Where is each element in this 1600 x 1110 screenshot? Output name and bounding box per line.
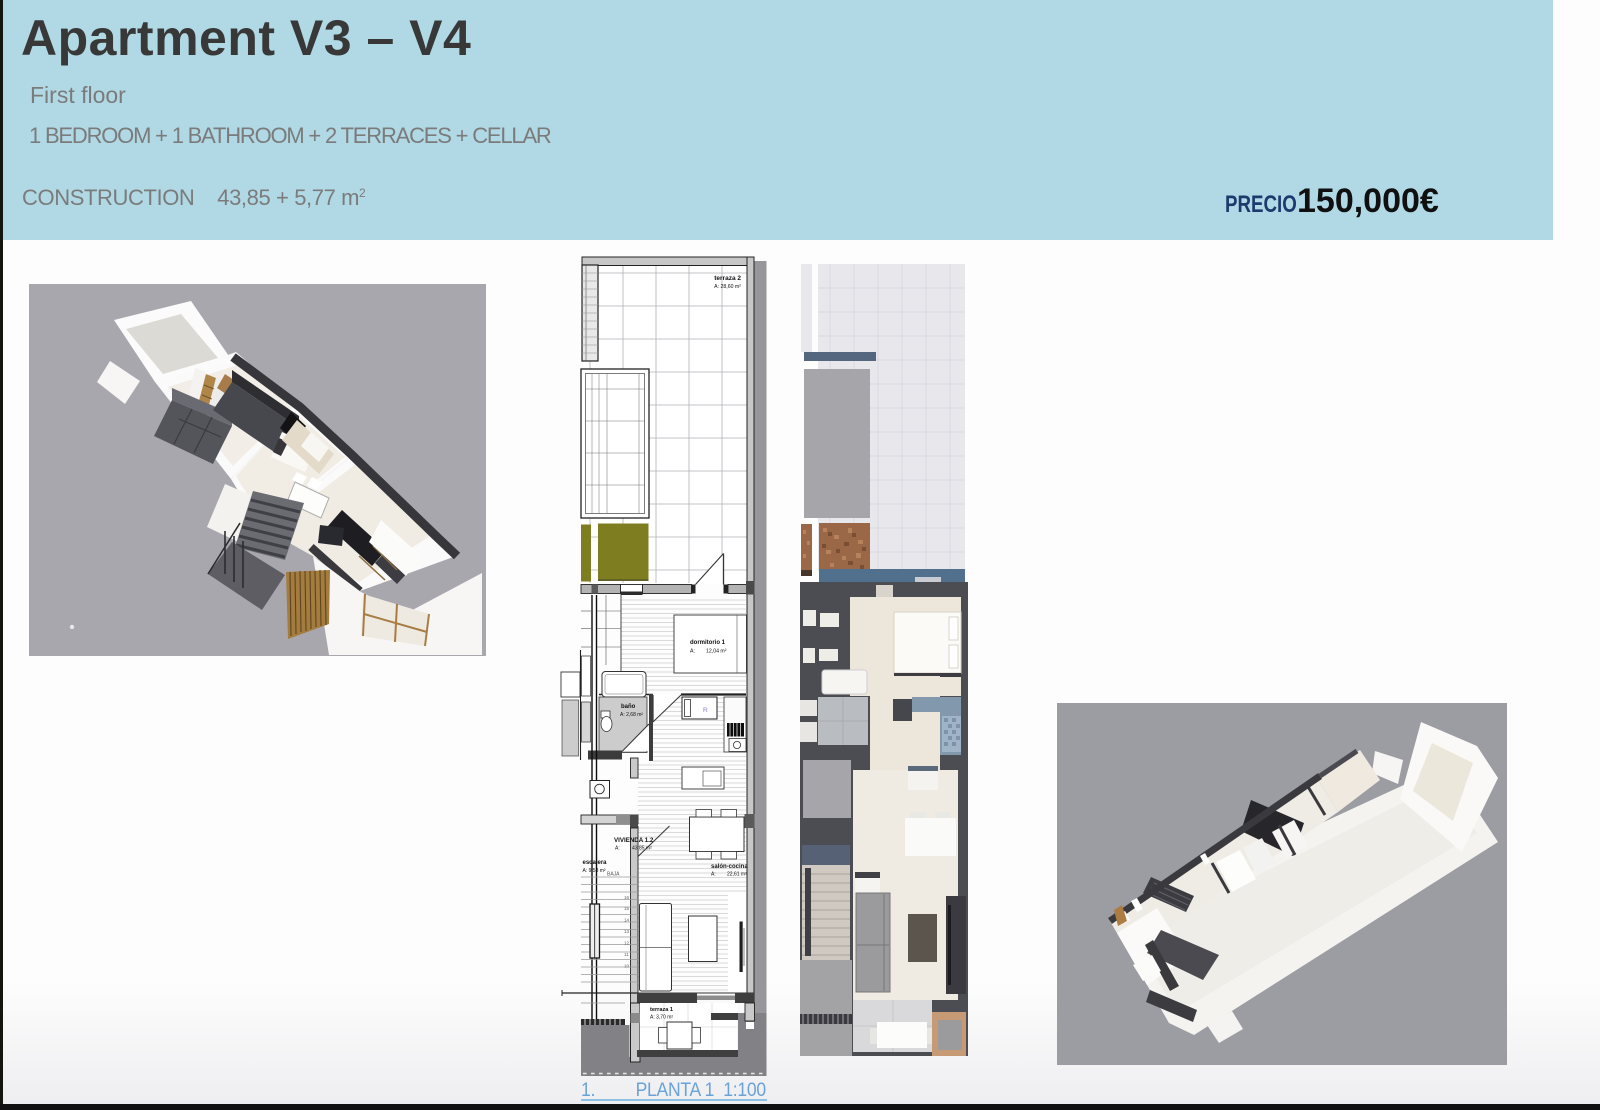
svg-text:11: 11 — [624, 952, 629, 957]
svg-text:16: 16 — [624, 895, 630, 900]
svg-text:R: R — [703, 707, 708, 714]
svg-text:A: 28,60 m²: A: 28,60 m² — [714, 284, 741, 290]
svg-text:escalera: escalera — [583, 860, 608, 866]
svg-text:terraza 2: terraza 2 — [714, 275, 741, 282]
svg-text:A:: A: — [711, 872, 716, 878]
svg-text:baño: baño — [621, 704, 636, 710]
svg-text:VIVIENDA 1.2: VIVIENDA 1.2 — [614, 837, 654, 844]
svg-text:22,61 m²: 22,61 m² — [727, 872, 747, 878]
svg-text:12,04 m²: 12,04 m² — [706, 649, 727, 655]
svg-text:dormitorio 1: dormitorio 1 — [690, 640, 726, 646]
svg-text:15: 15 — [624, 906, 630, 911]
svg-text:14: 14 — [624, 918, 630, 923]
svg-text:A:: A: — [690, 649, 695, 655]
svg-text:A: 2,68 m²: A: 2,68 m² — [620, 712, 643, 718]
svg-text:A:: A: — [615, 846, 620, 852]
svg-text:13: 13 — [624, 929, 630, 934]
svg-text:10: 10 — [624, 964, 630, 969]
svg-text:A: 9,58 m²: A: 9,58 m² — [583, 868, 606, 874]
svg-text:salón-cocina: salón-cocina — [711, 864, 748, 870]
svg-text:BAJA: BAJA — [607, 872, 620, 878]
svg-text:12: 12 — [624, 941, 630, 946]
svg-text:terraza 1: terraza 1 — [650, 1007, 673, 1013]
svg-text:A: 3,70 m²: A: 3,70 m² — [650, 1015, 673, 1021]
